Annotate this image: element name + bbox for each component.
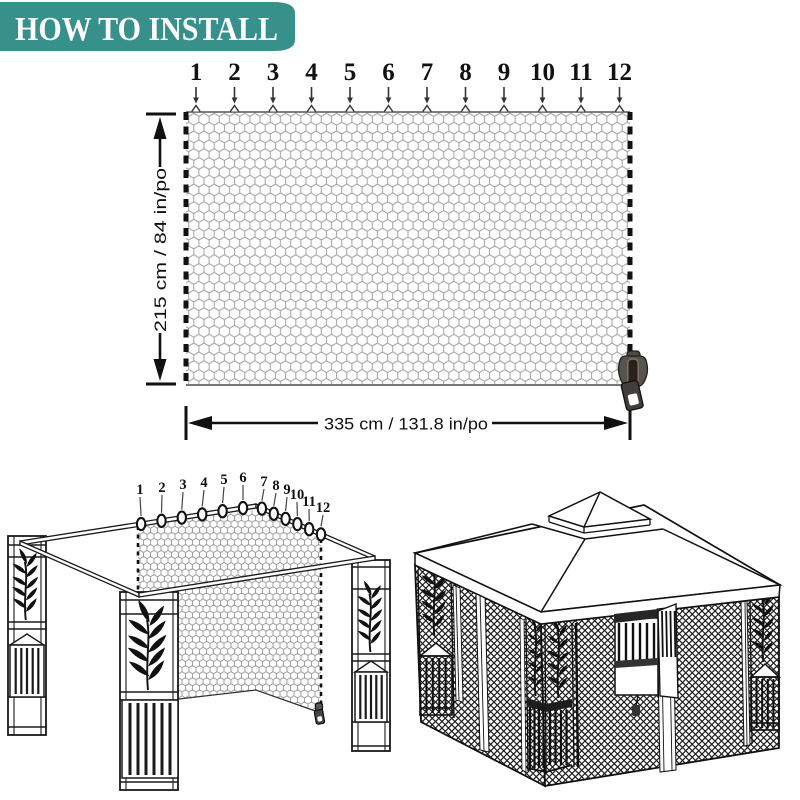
svg-text:6: 6 [382,59,395,86]
svg-text:4: 4 [200,475,207,491]
svg-text:3: 3 [267,59,280,86]
svg-text:4: 4 [305,59,318,86]
svg-text:HOW TO INSTALL: HOW TO INSTALL [15,11,278,48]
svg-text:2: 2 [158,480,165,496]
svg-text:11: 11 [569,59,593,86]
svg-text:1: 1 [190,59,203,86]
svg-text:3: 3 [179,477,186,493]
svg-text:11: 11 [302,494,316,510]
svg-text:1: 1 [136,482,143,498]
svg-text:10: 10 [530,59,555,86]
svg-text:6: 6 [239,470,246,486]
svg-text:335 cm / 131.8 in/po: 335 cm / 131.8 in/po [324,415,488,434]
svg-text:8: 8 [272,478,279,494]
svg-text:12: 12 [316,500,331,516]
svg-text:5: 5 [344,59,357,86]
svg-text:9: 9 [498,59,511,86]
svg-text:5: 5 [220,472,227,488]
svg-text:8: 8 [459,59,472,86]
svg-text:2: 2 [228,59,241,86]
svg-text:12: 12 [607,59,632,86]
svg-text:7: 7 [260,474,267,490]
svg-text:7: 7 [421,59,434,86]
svg-text:215 cm / 84 in/po: 215 cm / 84 in/po [151,168,170,332]
